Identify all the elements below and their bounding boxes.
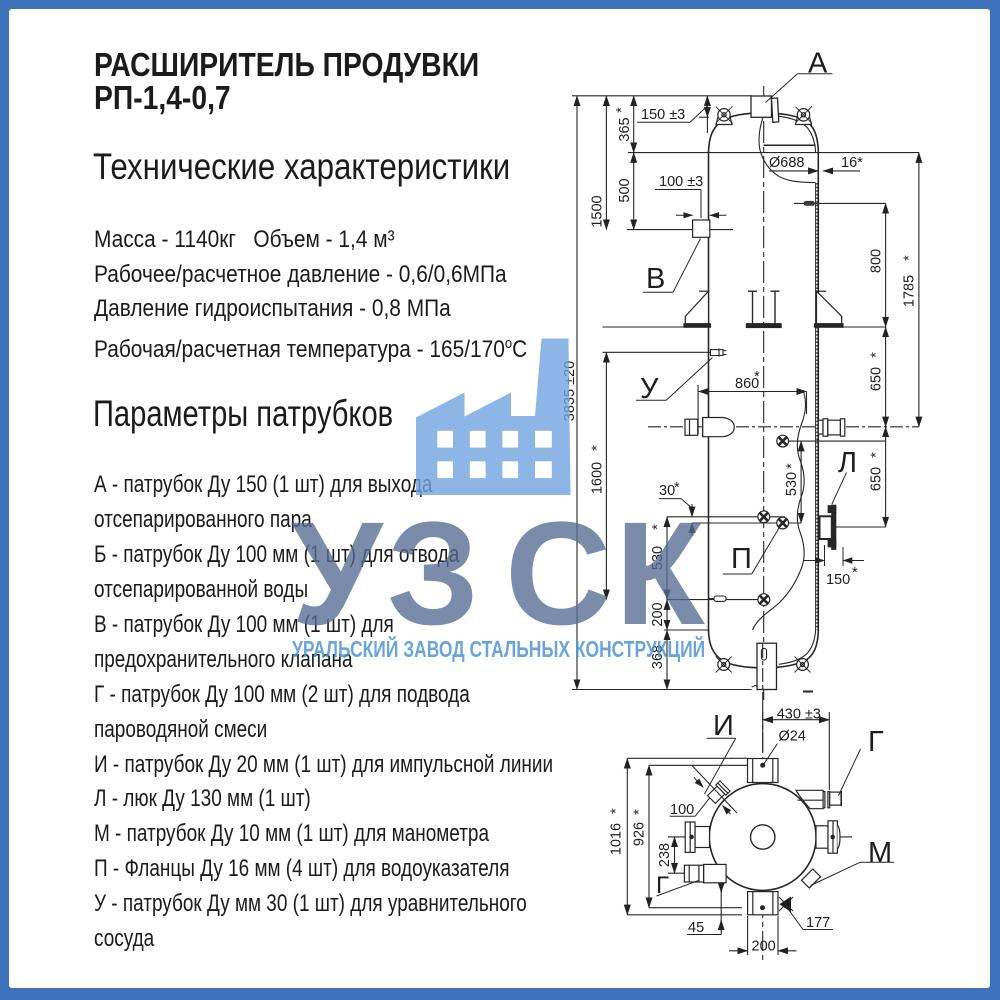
- svg-text:Ø24: Ø24: [779, 729, 806, 745]
- svg-text:У: У: [640, 373, 659, 405]
- svg-text:Г: Г: [656, 872, 669, 899]
- svg-text:Л: Л: [838, 447, 857, 479]
- svg-text:*: *: [784, 463, 800, 469]
- svg-text:3835 ±20: 3835 ±20: [562, 361, 578, 421]
- svg-text:365: 365: [617, 117, 633, 141]
- svg-text:*: *: [754, 369, 760, 385]
- svg-text:Ø688: Ø688: [769, 155, 804, 171]
- svg-text:*: *: [674, 480, 680, 496]
- svg-text:500: 500: [617, 178, 633, 202]
- svg-text:45: 45: [688, 920, 704, 936]
- svg-text:Г: Г: [868, 726, 884, 758]
- svg-text:100: 100: [670, 802, 694, 818]
- svg-text:926: 926: [632, 822, 648, 846]
- svg-text:*: *: [590, 445, 606, 451]
- svg-text:200: 200: [650, 602, 666, 626]
- svg-text:*: *: [869, 352, 885, 358]
- svg-text:М: М: [868, 837, 892, 869]
- svg-text:1600: 1600: [590, 462, 606, 494]
- svg-text:177: 177: [806, 915, 830, 931]
- svg-text:П: П: [731, 543, 752, 575]
- svg-text:*: *: [650, 524, 666, 530]
- svg-text:В: В: [646, 263, 665, 295]
- svg-text:150 ±3: 150 ±3: [641, 107, 685, 123]
- svg-text:16*: 16*: [841, 155, 863, 171]
- svg-text:650: 650: [869, 367, 885, 391]
- svg-text:А: А: [808, 48, 828, 80]
- svg-text:530: 530: [784, 472, 800, 496]
- svg-text:800: 800: [869, 249, 885, 273]
- svg-text:530: 530: [650, 546, 666, 570]
- svg-text:30: 30: [659, 483, 675, 499]
- svg-text:650: 650: [869, 467, 885, 491]
- svg-text:1785: 1785: [902, 275, 918, 307]
- svg-text:150: 150: [826, 572, 850, 588]
- svg-text:*: *: [869, 452, 885, 458]
- svg-text:100 ±3: 100 ±3: [659, 174, 703, 190]
- svg-text:*: *: [902, 255, 918, 261]
- svg-text:368: 368: [650, 645, 666, 669]
- svg-text:200: 200: [752, 939, 776, 955]
- svg-text:238: 238: [657, 843, 673, 867]
- svg-text:*: *: [614, 107, 630, 113]
- svg-text:430 ±3: 430 ±3: [777, 707, 821, 723]
- svg-text:И: И: [713, 710, 734, 742]
- svg-text:*: *: [609, 808, 625, 814]
- svg-text:*: *: [852, 565, 858, 581]
- svg-text:1016: 1016: [609, 823, 625, 855]
- svg-text:*: *: [632, 809, 648, 815]
- svg-text:1500: 1500: [590, 195, 606, 227]
